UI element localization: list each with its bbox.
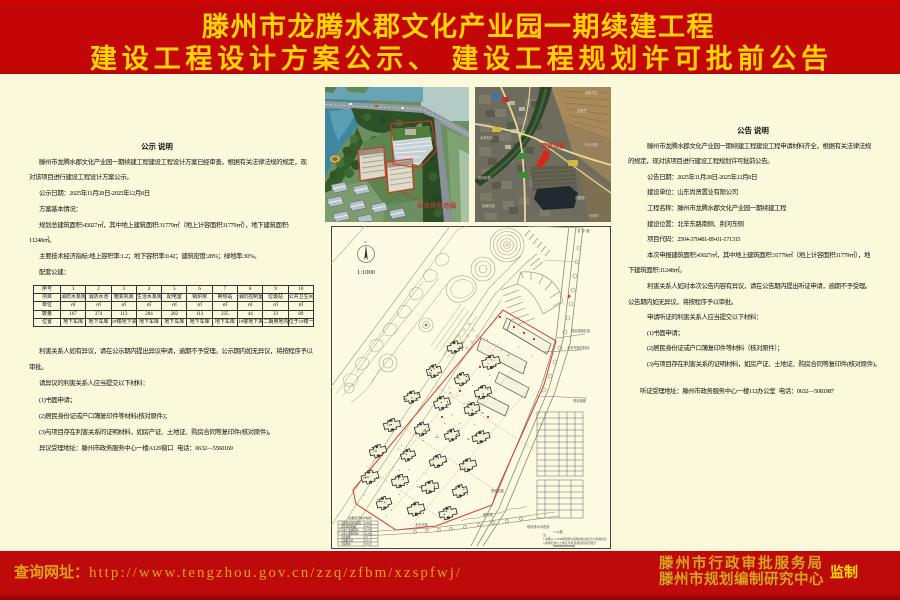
svg-text:北辛东路: 北辛东路 xyxy=(415,522,429,527)
svg-text:规划支路: 规划支路 xyxy=(491,488,505,493)
svg-text:建筑密度: 建筑密度 xyxy=(343,539,354,543)
svg-text:龙阳村: 龙阳村 xyxy=(577,108,587,113)
svg-text:1.本图以1:1000地形图为底图绘制,坐标为大地坐标系: 1.本图以1:1000地形图为底图绘制,坐标为大地坐标系 xyxy=(543,537,607,541)
svg-text:项目位置: 项目位置 xyxy=(541,142,565,150)
svg-text:2.用地红线以土地证为准,建筑退线详见图示: 2.用地红线以土地证为准,建筑退线详见图示 xyxy=(543,541,596,545)
svg-text:规划道路红线: 规划道路红线 xyxy=(571,328,591,333)
svg-text:现状道路: 现状道路 xyxy=(573,398,587,403)
svg-text:容积率: 容积率 xyxy=(343,535,351,539)
svg-text:本次许可范围: 本次许可范围 xyxy=(417,202,457,210)
svg-text:洪绪镇: 洪绪镇 xyxy=(575,195,585,200)
svg-text:7.5m宽: 7.5m宽 xyxy=(553,529,563,534)
svg-text:现状排水沟改线: 现状排水沟改线 xyxy=(527,524,550,529)
svg-text:绿地率: 绿地率 xyxy=(343,542,351,546)
svg-text:总 平 面: 总 平 面 xyxy=(577,228,590,233)
svg-text:荆河街道: 荆河街道 xyxy=(478,175,492,180)
svg-text:地上建筑面积: 地上建筑面积 xyxy=(343,528,359,532)
svg-text:东沙河镇: 东沙河镇 xyxy=(585,142,599,147)
svg-text:大同村: 大同村 xyxy=(589,213,599,218)
svg-text:北辛街道: 北辛街道 xyxy=(480,135,494,140)
svg-text:官桥村北: 官桥村北 xyxy=(585,90,599,95)
svg-text:规划总用地面积: 规划总用地面积 xyxy=(343,521,362,525)
svg-text:盛世路: 盛世路 xyxy=(483,512,493,517)
svg-text:北辛东路控制线: 北辛东路控制线 xyxy=(567,345,590,350)
svg-text:主要经济技术指标: 主要经济技术指标 xyxy=(348,515,372,520)
svg-text:1:1000: 1:1000 xyxy=(357,269,375,276)
svg-text:总建筑面积: 总建筑面积 xyxy=(343,525,356,529)
svg-text:地下建筑面积: 地下建筑面积 xyxy=(343,532,359,536)
svg-text:注:: 注: xyxy=(543,533,547,537)
svg-text:30%: 30% xyxy=(365,543,371,546)
svg-text:善南街道: 善南街道 xyxy=(482,203,496,208)
